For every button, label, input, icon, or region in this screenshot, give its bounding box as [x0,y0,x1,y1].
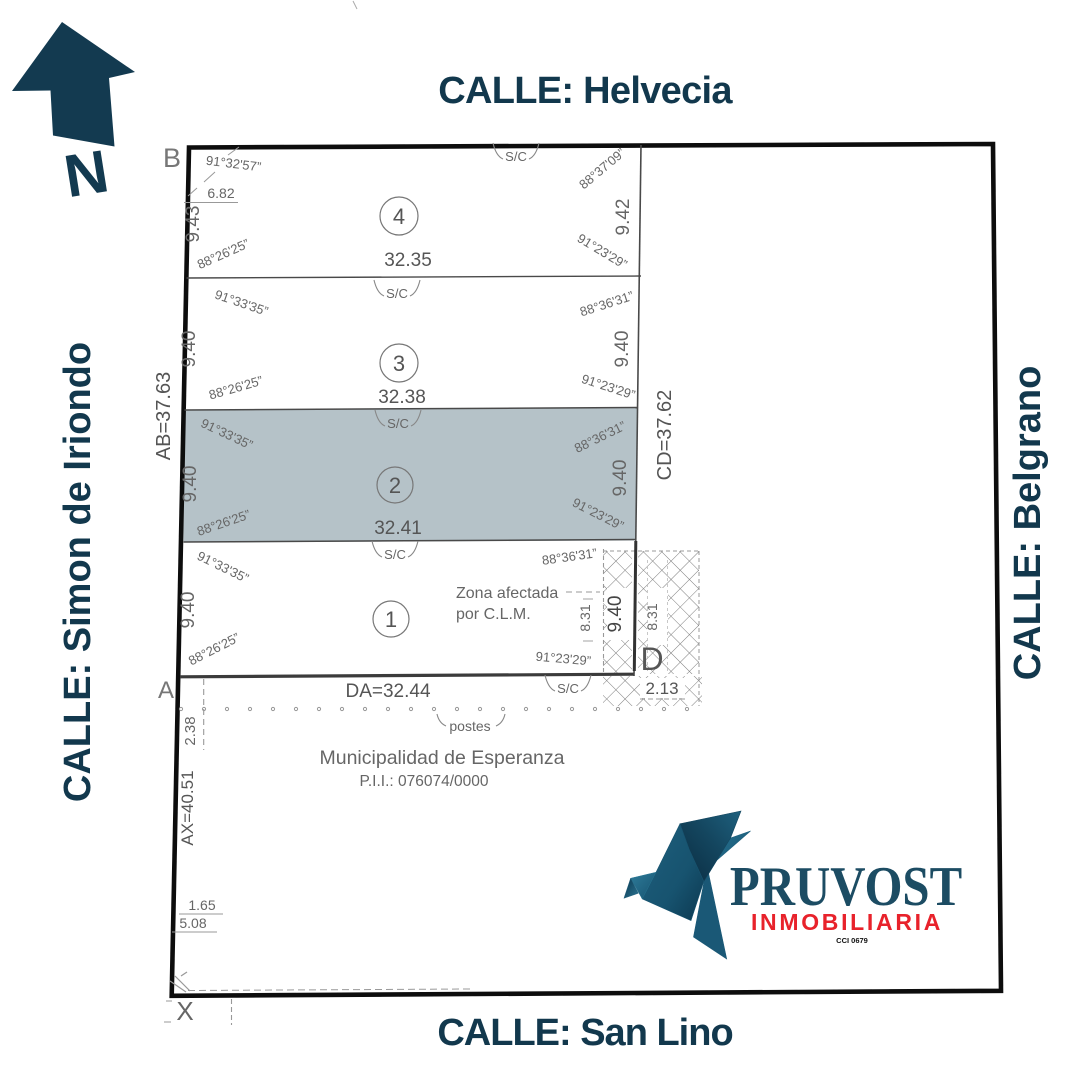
svg-text:5.08: 5.08 [179,915,206,931]
svg-text:8.31: 8.31 [577,604,593,631]
svg-text:9.40: 9.40 [180,466,201,503]
svg-text:A: A [158,677,174,704]
svg-text:2: 2 [389,473,401,498]
svg-text:9.40: 9.40 [178,592,199,629]
svg-text:AX=40.51: AX=40.51 [178,770,197,845]
svg-text:AB=37.63: AB=37.63 [153,372,175,460]
svg-text:8.31: 8.31 [644,603,660,630]
svg-text:32.35: 32.35 [384,250,432,271]
svg-text:INMOBILIARIA: INMOBILIARIA [751,909,943,935]
svg-text:X: X [176,996,193,1026]
svg-text:B: B [163,143,181,173]
svg-text:3: 3 [393,351,405,376]
svg-text:9.40: 9.40 [605,596,626,633]
svg-text:S/C: S/C [386,286,408,301]
svg-text:6.82: 6.82 [207,185,234,201]
svg-text:4: 4 [393,204,405,229]
svg-text:9.43: 9.43 [183,206,204,243]
svg-text:S/C: S/C [557,681,579,696]
svg-text:por C.L.M.: por C.L.M. [456,606,531,623]
svg-text:9.40: 9.40 [610,460,631,497]
svg-text:S/C: S/C [384,547,406,562]
svg-text:Municipalidad de Esperanza: Municipalidad de Esperanza [320,747,565,769]
svg-text:2.13: 2.13 [645,679,678,698]
svg-text:1: 1 [385,607,397,632]
svg-text:32.38: 32.38 [378,387,426,408]
svg-text:S/C: S/C [505,149,527,164]
svg-text:Zona afectada: Zona afectada [456,585,558,602]
svg-text:9.40: 9.40 [612,331,633,368]
svg-text:postes: postes [449,718,490,734]
svg-text:9.42: 9.42 [613,199,634,236]
svg-text:9.40: 9.40 [179,331,200,368]
svg-text:S/C: S/C [387,416,409,431]
svg-text:32.41: 32.41 [374,518,422,539]
svg-text:CALLE: Simon de Iriondo: CALLE: Simon de Iriondo [57,342,99,802]
svg-text:D: D [640,641,663,677]
svg-text:CCI 0679: CCI 0679 [836,936,868,945]
svg-text:CALLE: Belgrano: CALLE: Belgrano [1007,366,1049,681]
svg-text:CALLE: Helvecia: CALLE: Helvecia [438,70,733,112]
svg-text:1.65: 1.65 [188,897,215,913]
svg-text:CALLE: San Lino: CALLE: San Lino [437,1012,732,1054]
svg-text:DA=32.44: DA=32.44 [345,681,430,702]
svg-text:P.I.I.: 076074/0000: P.I.I.: 076074/0000 [360,773,489,790]
svg-text:CD=37.62: CD=37.62 [654,390,676,481]
svg-text:2.38: 2.38 [182,716,199,745]
